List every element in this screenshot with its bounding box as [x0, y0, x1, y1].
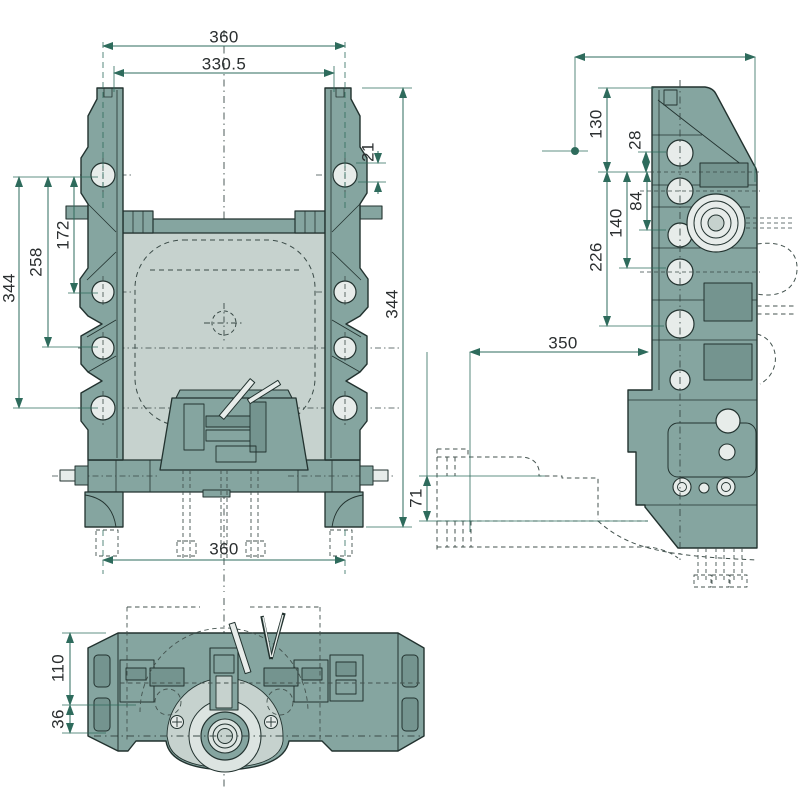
front-left-stub [66, 206, 88, 219]
dim-side-350: 350 [548, 335, 578, 352]
front-housing [160, 379, 308, 470]
side-view [437, 80, 797, 587]
dim-front-span-258: 258 [28, 247, 45, 277]
dim-bottom-110: 110 [50, 654, 67, 682]
dim-bottom-36: 36 [50, 709, 67, 729]
datum-dot [571, 147, 579, 155]
dim-front-span-172: 172 [55, 220, 72, 250]
front-right-stub [360, 206, 382, 219]
front-view [52, 30, 400, 592]
drawing-canvas: 360 330.5 21 172 258 344 344 360 130 28 … [0, 0, 800, 800]
dim-front-height: 344 [384, 289, 401, 319]
dim-side-84: 84 [628, 191, 645, 211]
dim-front-top-width: 360 [209, 29, 239, 46]
bottom-view [88, 598, 424, 788]
front-right-bolt [373, 470, 388, 481]
dim-side-28: 28 [627, 130, 644, 150]
dim-front-bottom-width: 360 [209, 541, 239, 558]
dim-side-140: 140 [608, 208, 625, 238]
drawing-svg [0, 0, 800, 800]
dim-side-71: 71 [408, 488, 425, 508]
dim-front-span-344: 344 [1, 273, 18, 303]
dim-front-inner-width: 330.5 [202, 56, 247, 73]
dim-side-130: 130 [588, 109, 605, 139]
side-phantom-right [757, 243, 797, 384]
dim-side-226: 226 [588, 242, 605, 272]
dim-front-lug-offset: 21 [360, 142, 377, 162]
front-left-bolt [60, 470, 75, 481]
side-bottom-studs [694, 548, 747, 587]
